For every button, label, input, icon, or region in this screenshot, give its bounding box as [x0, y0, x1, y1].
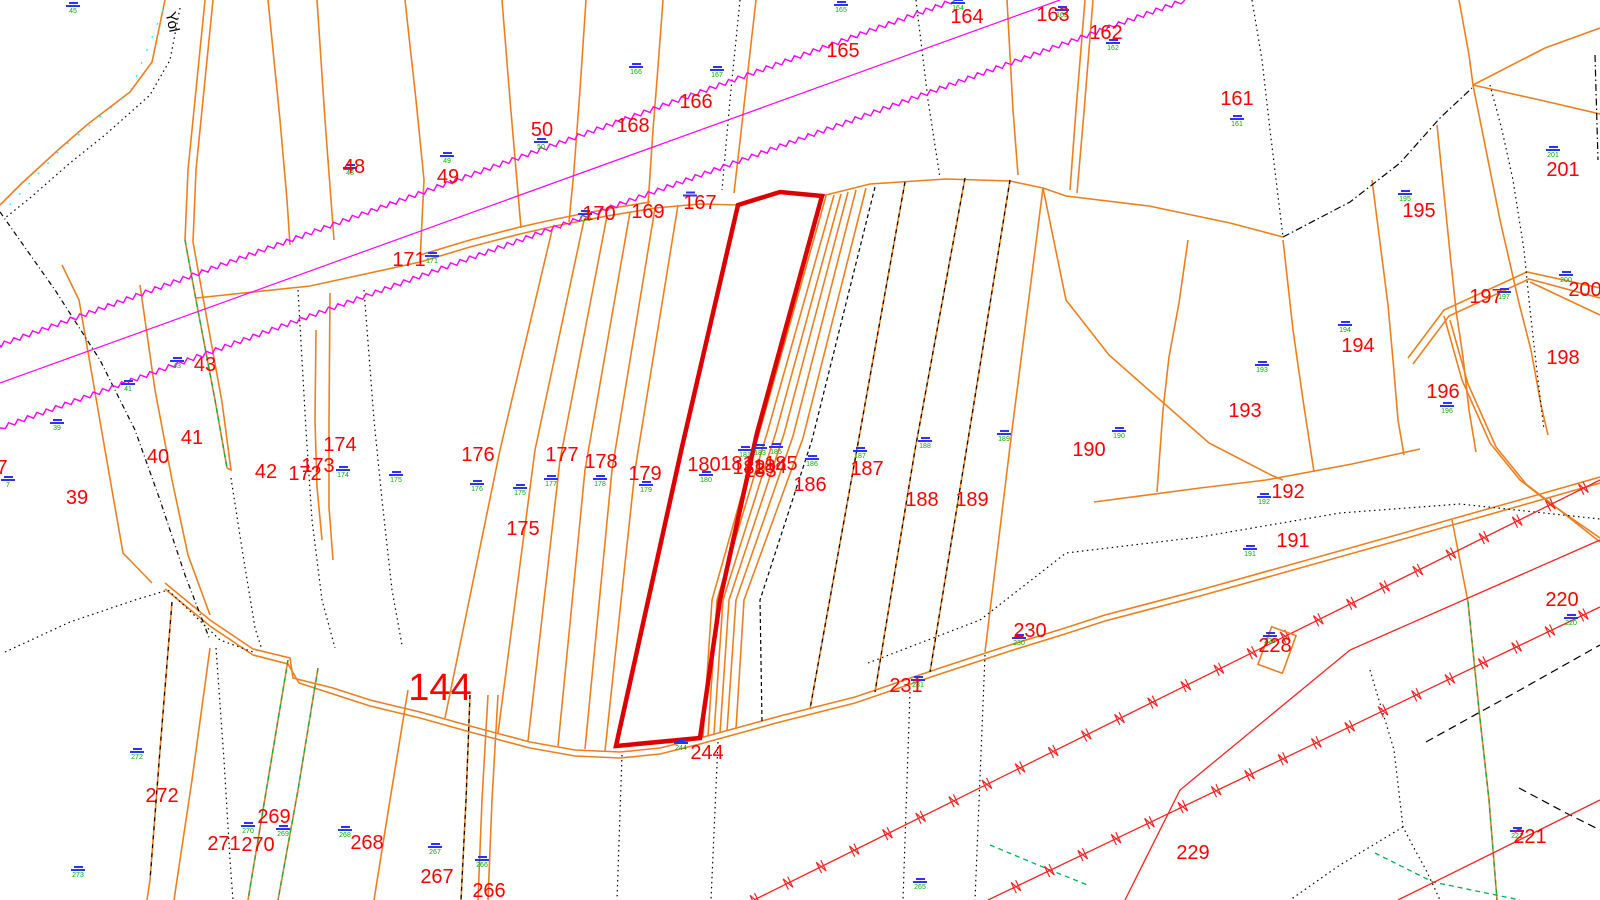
symbol-parcel-number: 177	[544, 481, 558, 488]
dotted-boundary-line	[1290, 827, 1403, 900]
symbol-parcel-number: 265	[913, 884, 927, 891]
symbol-parcel-number: 174	[336, 472, 350, 479]
symbol-bar-icon	[170, 360, 184, 362]
symbol-bar-icon	[954, 0, 963, 1]
land-use-symbol: 193	[1255, 360, 1269, 374]
symbol-bar-icon	[1260, 493, 1269, 495]
symbol-parcel-number: 167	[710, 72, 724, 79]
parcel-label-173: 173	[301, 456, 334, 476]
dotted-boundary-line	[975, 655, 985, 900]
power-line-tick-mark	[816, 860, 826, 873]
parcel-boundary-line	[315, 330, 322, 540]
power-line-tick-mark	[1412, 688, 1422, 701]
symbol-parcel-number: 201	[1546, 152, 1560, 159]
land-use-symbol: 166	[629, 62, 643, 76]
symbol-parcel-number: 165	[834, 7, 848, 14]
symbol-bar-icon	[534, 141, 548, 143]
parcel-label-163: 163	[1036, 5, 1069, 25]
parcel-label-42: 42	[255, 462, 277, 482]
symbol-parcel-number: 50	[534, 144, 548, 151]
symbol-bar-icon	[629, 66, 643, 68]
symbol-parcel-number: 193	[1255, 367, 1269, 374]
symbol-bar-icon	[741, 446, 750, 448]
power-line-tick-mark	[1145, 816, 1155, 829]
symbol-bar-icon	[547, 475, 556, 477]
symbol-bar-icon	[1341, 321, 1350, 323]
symbol-parcel-number: 175	[513, 490, 527, 497]
power-line-tick-mark	[1479, 531, 1489, 544]
parcel-label-187: 187	[850, 459, 883, 479]
symbol-bar-icon	[516, 484, 525, 486]
symbol-bar-icon	[124, 380, 133, 382]
parcel-label-220: 220	[1545, 590, 1578, 610]
symbol-bar-icon	[808, 455, 817, 457]
parcel-boundary-line	[461, 695, 470, 900]
symbol-bar-icon	[341, 826, 350, 828]
parcel-label-168: 168	[616, 116, 649, 136]
parcel-label-43: 43	[194, 355, 216, 375]
parcel-boundary-line	[498, 220, 584, 733]
parcel-label-165: 165	[826, 41, 859, 61]
power-line-tick-mark	[1048, 745, 1058, 758]
symbol-bar-icon	[425, 255, 439, 257]
symbol-bar-icon	[1401, 190, 1410, 192]
symbol-bar-icon	[834, 4, 848, 6]
land-use-symbol: 175	[389, 470, 403, 484]
symbol-bar-icon	[71, 869, 85, 871]
symbol-parcel-number: 176	[470, 486, 484, 493]
symbol-bar-icon	[1233, 115, 1242, 117]
symbol-parcel-number: 186	[805, 461, 819, 468]
parcel-label-190: 190	[1072, 440, 1105, 460]
symbol-bar-icon	[913, 881, 927, 883]
symbol-bar-icon	[241, 825, 255, 827]
symbol-bar-icon	[1440, 405, 1454, 407]
parcel-label-270: 270	[241, 835, 274, 855]
green-dashed-line	[1375, 853, 1520, 900]
symbol-bar-icon	[1546, 149, 1560, 151]
symbol-bar-icon	[837, 1, 846, 3]
symbol-parcel-number: 49	[440, 158, 454, 165]
dotted-boundary-line	[1252, 0, 1283, 237]
cadastral-map-canvas[interactable]: 4516516416316216616750494816120119517017…	[0, 0, 1600, 900]
parcel-label-200: 200	[1568, 280, 1600, 300]
symbol-bar-icon	[1, 479, 15, 481]
symbol-bar-icon	[1258, 361, 1267, 363]
power-line-tick-mark	[1247, 646, 1257, 659]
parcel-boundary-line	[734, 0, 756, 193]
power-line-tick-mark	[1214, 663, 1224, 676]
parcel-boundary-line	[1372, 180, 1404, 455]
parcel-boundary-line	[147, 602, 172, 900]
dotted-boundary-line	[1370, 670, 1440, 900]
symbol-bar-icon	[677, 739, 686, 741]
parcel-label-188: 188	[905, 490, 938, 510]
land-use-symbol: 220	[1564, 613, 1578, 627]
symbol-parcel-number: 272	[130, 754, 144, 761]
parcel-label-221: 221	[1513, 827, 1546, 847]
parcel-boundary-line	[569, 0, 586, 222]
land-use-symbol: 191	[1243, 544, 1257, 558]
symbol-bar-icon	[339, 466, 348, 468]
symbol-parcel-number: 180	[699, 477, 713, 484]
parcel-boundary-line	[1473, 85, 1548, 435]
land-use-symbol: 201	[1546, 145, 1560, 159]
parcel-label-40: 40	[147, 447, 169, 467]
parcel-label-271: 271	[207, 834, 240, 854]
parcel-label-162: 162	[1089, 23, 1122, 43]
symbol-parcel-number: 7	[1, 482, 15, 489]
parcel-boundary-line	[62, 265, 152, 583]
symbol-bar-icon	[1246, 545, 1255, 547]
parcel-label-178: 178	[584, 452, 617, 472]
land-use-symbol: 196	[1440, 401, 1454, 415]
parcel-boundary-line	[268, 0, 290, 245]
symbol-parcel-number: 45	[66, 8, 80, 15]
power-line	[1398, 800, 1600, 900]
parcel-label-175: 175	[506, 519, 539, 539]
parcel-boundary-line	[985, 188, 1043, 652]
symbol-bar-icon	[74, 866, 83, 868]
parcel-label-269: 269	[257, 807, 290, 827]
land-use-symbol: 171	[425, 251, 439, 265]
parcel-boundary-line	[1473, 28, 1600, 85]
dotted-boundary-line	[1595, 55, 1598, 160]
parcel-label-231: 231	[889, 676, 922, 696]
parcel-label-186: 186	[793, 475, 826, 495]
dotted-boundary-line	[0, 212, 210, 640]
power-line-tick-mark	[1211, 784, 1221, 797]
power-line-tick-mark	[1148, 696, 1158, 709]
symbol-parcel-number: 269	[276, 831, 290, 838]
power-line-tick-mark	[1011, 880, 1021, 893]
power-line-tick-mark	[1545, 624, 1555, 637]
parcel-boundary-line	[1459, 0, 1473, 85]
parcel-label-272: 272	[145, 786, 178, 806]
symbol-parcel-number: 244	[674, 745, 688, 752]
symbol-parcel-number: 43	[170, 363, 184, 370]
land-use-symbol: 165	[834, 0, 848, 14]
parcel-label-161: 161	[1220, 89, 1253, 109]
symbol-bar-icon	[769, 446, 783, 448]
symbol-parcel-number: 191	[1243, 551, 1257, 558]
parcel-label-169: 169	[631, 202, 664, 222]
dotted-boundary-line	[916, 0, 940, 178]
parcel-label-201: 201	[1546, 160, 1579, 180]
parcel-label-198: 198	[1546, 348, 1579, 368]
symbol-parcel-number: 194	[1338, 327, 1352, 334]
symbol-bar-icon	[544, 478, 558, 480]
land-use-symbol: 189	[997, 429, 1011, 443]
symbol-bar-icon	[1257, 496, 1271, 498]
symbol-parcel-number: 188	[918, 443, 932, 450]
parcel-label-50: 50	[531, 120, 553, 140]
symbol-parcel-number: 189	[997, 436, 1011, 443]
symbol-bar-icon	[1398, 193, 1412, 195]
power-line-tick-mark	[1178, 800, 1188, 813]
parcel-boundary-line	[502, 0, 521, 228]
symbol-bar-icon	[173, 357, 182, 359]
parcel-label-177: 177	[545, 445, 578, 465]
symbol-bar-icon	[1255, 364, 1269, 366]
parcel-label-48: 48	[343, 157, 365, 177]
land-use-symbol: 272	[130, 747, 144, 761]
symbol-parcel-number: 273	[71, 872, 85, 879]
power-line-tick-mark	[849, 844, 859, 857]
symbol-parcel-number: 192	[1257, 499, 1271, 506]
dotted-boundary-line	[868, 504, 1600, 663]
parcel-label-49: 49	[437, 167, 459, 187]
power-line-tick-mark	[1512, 640, 1522, 653]
power-line-tick-mark	[1278, 752, 1288, 765]
dotted-boundary-line	[231, 478, 262, 650]
parcel-label-39: 39	[66, 488, 88, 508]
symbol-bar-icon	[853, 450, 867, 452]
symbol-bar-icon	[713, 66, 722, 68]
parcel-label-197: 197	[1469, 287, 1502, 307]
parcel-boundary-line	[165, 583, 253, 649]
power-line-tick-mark	[1446, 548, 1456, 561]
land-use-symbol: 39	[50, 418, 64, 432]
parcel-label-189: 189	[955, 490, 988, 510]
dotted-boundary-line	[617, 755, 622, 900]
parcel-boundary-line	[1157, 240, 1188, 492]
symbol-bar-icon	[513, 487, 527, 489]
parcel-boundary-line	[488, 695, 498, 900]
parcel-label-229: 229	[1176, 843, 1209, 863]
power-line-tick-mark	[1115, 712, 1125, 725]
power-line-tick-mark	[1478, 656, 1488, 669]
symbol-parcel-number: 196	[1440, 408, 1454, 415]
parcel-label-193: 193	[1228, 401, 1261, 421]
dotted-boundary-line	[711, 742, 718, 900]
power-line-tick-mark	[1413, 564, 1423, 577]
symbol-bar-icon	[1230, 118, 1244, 120]
land-use-symbol: 176	[470, 479, 484, 493]
land-use-symbol: 188	[918, 436, 932, 450]
power-line-tick-mark	[1445, 672, 1455, 685]
power-line-tick-mark	[1311, 736, 1321, 749]
symbol-bar-icon	[918, 440, 932, 442]
symbol-bar-icon	[428, 846, 442, 848]
parcel-label-180: 180	[687, 455, 720, 475]
parcel-label-176: 176	[461, 445, 494, 465]
power-line-tick-mark	[1078, 848, 1088, 861]
land-use-symbol: 270	[241, 821, 255, 835]
parcel-boundary-line	[317, 0, 334, 240]
symbol-parcel-number: 190	[1112, 433, 1126, 440]
parcel-boundary-line	[1283, 240, 1314, 472]
power-line-tick-mark	[883, 827, 893, 840]
power-line-tick-mark	[1245, 768, 1255, 781]
power-line-tick-mark	[1512, 515, 1522, 528]
power-line-tick-mark	[1313, 613, 1323, 626]
parcel-boundary-line	[253, 483, 1600, 758]
symbol-bar-icon	[478, 856, 487, 858]
symbol-parcel-number: 161	[1230, 121, 1244, 128]
symbol-parcel-number: 175	[389, 477, 403, 484]
land-use-symbol: 273	[71, 865, 85, 879]
parcel-label-144: 144	[408, 669, 471, 707]
dotted-boundary-line	[1426, 645, 1600, 742]
parcel-boundary-line	[1452, 520, 1497, 900]
green-dashed-line	[990, 845, 1090, 886]
power-line-tick-mark	[1578, 608, 1588, 621]
symbol-bar-icon	[244, 822, 253, 824]
land-use-symbol: 192	[1257, 492, 1271, 506]
dotted-boundary-line	[216, 648, 233, 900]
symbol-bar-icon	[1564, 617, 1578, 619]
land-use-symbol: 43	[170, 356, 184, 370]
symbol-bar-icon	[1562, 271, 1571, 273]
symbol-bar-icon	[674, 742, 688, 744]
symbol-bar-icon	[1338, 324, 1352, 326]
symbol-parcel-number: 41	[121, 386, 135, 393]
power-line-tick-mark	[1081, 729, 1091, 742]
parcel-boundary-line	[822, 179, 1283, 237]
land-use-symbol: 175	[513, 483, 527, 497]
symbol-bar-icon	[69, 2, 78, 4]
symbol-bar-icon	[756, 444, 765, 446]
land-use-symbol: 266	[475, 855, 489, 869]
power-line-tick-mark	[949, 794, 959, 807]
parcel-label-196: 196	[1426, 382, 1459, 402]
symbol-bar-icon	[1266, 632, 1275, 634]
power-line-tick-mark	[1045, 864, 1055, 877]
parcel-boundary-line	[1473, 85, 1600, 114]
power-line-tick-mark	[1378, 704, 1388, 717]
parcel-boundary-line	[1070, 0, 1085, 190]
parcel-label-166: 166	[679, 92, 712, 112]
parcel-label-267: 267	[420, 867, 453, 887]
symbol-parcel-number: 266	[475, 862, 489, 869]
symbol-bar-icon	[1549, 146, 1558, 148]
symbol-bar-icon	[53, 419, 62, 421]
symbol-bar-icon	[443, 152, 452, 154]
power-line-ticked	[988, 607, 1600, 900]
parcel-label-192: 192	[1271, 482, 1304, 502]
symbol-bar-icon	[856, 447, 865, 449]
road-name-label: Yol	[163, 11, 182, 34]
parcel-label-244: 244	[690, 743, 723, 763]
parcel-boundary-line	[1007, 0, 1018, 175]
symbol-bar-icon	[276, 828, 290, 830]
dotted-boundary-line	[5, 8, 180, 218]
parcel-label-41: 41	[181, 428, 203, 448]
parcel-boundary-line	[253, 477, 1600, 752]
parcel-label-230: 230	[1013, 621, 1046, 641]
symbol-parcel-number: 178	[593, 481, 607, 488]
symbol-bar-icon	[1000, 430, 1009, 432]
land-use-symbol: 45	[66, 1, 80, 15]
power-line-tick-mark	[916, 811, 926, 824]
parcel-label-171: 171	[392, 250, 425, 270]
parcel-label-268: 268	[350, 833, 383, 853]
land-use-symbol: 194	[1338, 320, 1352, 334]
land-use-symbol: 178	[593, 474, 607, 488]
symbol-bar-icon	[475, 859, 489, 861]
dotted-boundary-line	[1283, 88, 1472, 237]
symbol-bar-icon	[50, 422, 64, 424]
power-line-tick-mark	[1380, 580, 1390, 593]
parcel-boundary-line	[174, 648, 210, 900]
parcel-label-167: 167	[683, 193, 716, 213]
map-vector-layer	[0, 0, 1600, 900]
land-use-symbol: 244	[674, 738, 688, 752]
parcel-boundary-line	[1043, 188, 1283, 480]
land-use-symbol: 174	[336, 465, 350, 479]
power-line-tick-mark	[982, 778, 992, 791]
land-use-symbol: 41	[121, 379, 135, 393]
symbol-bar-icon	[921, 437, 930, 439]
symbol-bar-icon	[951, 2, 965, 4]
power-line-ticked	[754, 480, 1600, 900]
parcel-boundary-line	[0, 0, 165, 205]
symbol-bar-icon	[1559, 274, 1573, 276]
symbol-bar-icon	[431, 843, 440, 845]
parcel-label-266: 266	[472, 881, 505, 900]
symbol-bar-icon	[428, 252, 437, 254]
land-use-symbol: 186	[805, 454, 819, 468]
cyan-dashed-line	[5, 10, 163, 210]
parcel-label-7: 7	[0, 458, 8, 478]
symbol-bar-icon	[1112, 430, 1126, 432]
symbol-bar-icon	[389, 474, 403, 476]
dotted-boundary-line	[364, 290, 402, 645]
parcel-boundary-line	[445, 226, 553, 718]
power-line-tick-mark	[750, 893, 760, 900]
parcel-label-194: 194	[1341, 336, 1374, 356]
symbol-parcel-number: 162	[1106, 45, 1120, 52]
power-line-tick-mark	[1579, 482, 1589, 495]
parcel-label-170: 170	[582, 204, 615, 224]
parcel-label-195: 195	[1402, 201, 1435, 221]
symbol-bar-icon	[121, 383, 135, 385]
symbol-bar-icon	[336, 469, 350, 471]
parcel-boundary-line	[329, 293, 333, 560]
symbol-bar-icon	[593, 478, 607, 480]
symbol-bar-icon	[1567, 614, 1576, 616]
symbol-bar-icon	[66, 5, 80, 7]
symbol-parcel-number: 39	[50, 425, 64, 432]
land-use-symbol: 267	[428, 842, 442, 856]
dotted-boundary-line	[1519, 788, 1600, 830]
power-line-tick-mark	[1181, 679, 1191, 692]
symbol-bar-icon	[1243, 548, 1257, 550]
parcel-label-191: 191	[1276, 531, 1309, 551]
symbol-bar-icon	[997, 433, 1011, 435]
land-use-symbol: 161	[1230, 114, 1244, 128]
power-line-tick-mark	[783, 877, 793, 890]
symbol-bar-icon	[440, 155, 454, 157]
parcel-boundary-line	[165, 589, 253, 655]
symbol-parcel-number: 267	[428, 849, 442, 856]
power-line-tick-mark	[1015, 761, 1025, 774]
symbol-bar-icon	[392, 471, 401, 473]
dotted-boundary-line	[5, 590, 253, 652]
parcel-label-228: 228	[1258, 636, 1291, 656]
symbol-bar-icon	[916, 878, 925, 880]
symbol-bar-icon	[470, 483, 484, 485]
dotted-boundary-line	[903, 692, 910, 900]
symbol-parcel-number: 166	[629, 69, 643, 76]
land-use-symbol: 167	[710, 65, 724, 79]
symbol-bar-icon	[130, 751, 144, 753]
symbol-bar-icon	[473, 480, 482, 482]
power-line-tick-mark	[1347, 597, 1357, 610]
symbol-bar-icon	[710, 69, 724, 71]
symbol-bar-icon	[772, 443, 781, 445]
